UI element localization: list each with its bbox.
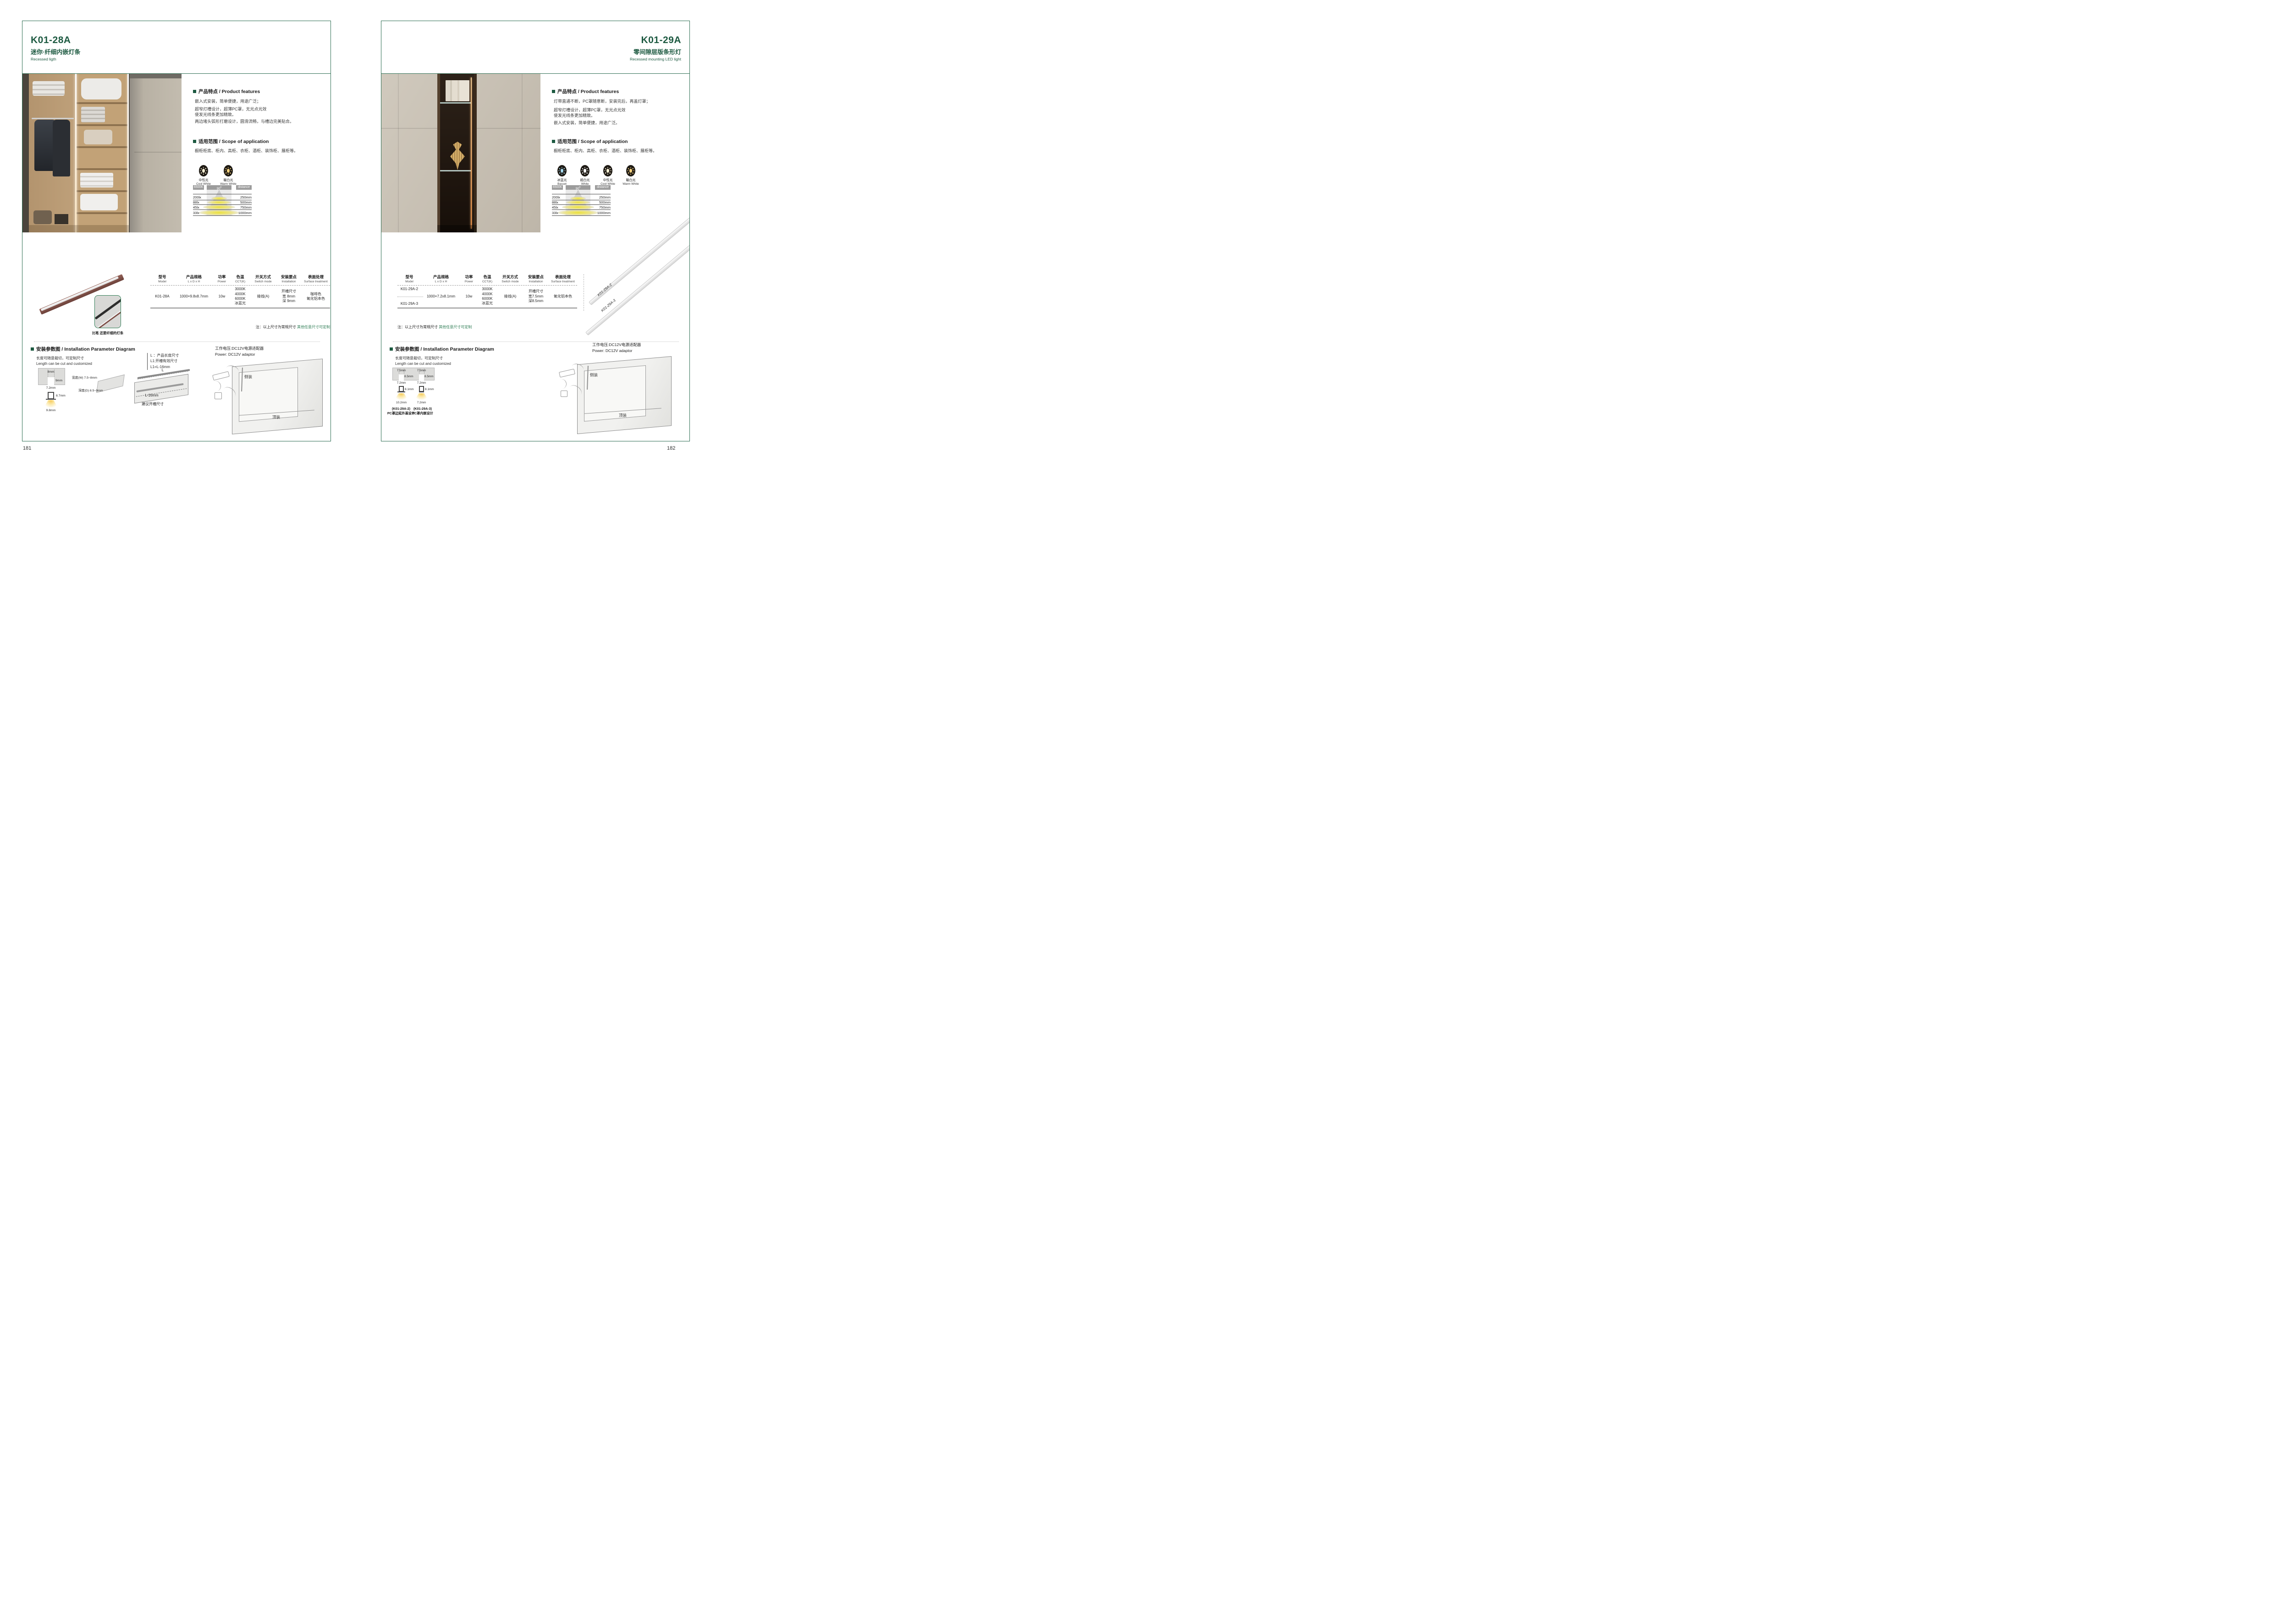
lux-value: 200lx (552, 195, 560, 199)
photo-panel-seam-v2 (522, 74, 523, 232)
cell-surface: 氧化铝本色 (549, 294, 577, 299)
distance-value: 750mm (599, 205, 611, 209)
distance-value: 500mm (240, 200, 252, 204)
page-number-left: 181 (23, 446, 31, 451)
dim-bottom2: 7.2mm (415, 401, 428, 404)
bullet-square-icon (390, 347, 393, 351)
table-header: 型号Model 产品规格L x D x H 功率Power 色温CCT(K) 开… (397, 274, 577, 286)
right-custom-note: 注：以上尺寸为常规尺寸 其他任意尺寸可定制 (397, 325, 472, 330)
cut-note: 长度可随意裁切，可定制尺寸Length can be cut and custo… (36, 356, 92, 366)
light-glow-1 (395, 393, 408, 400)
left-lifestyle-photo (22, 74, 182, 232)
dim-groove-depth: 深度(D) 8.5~9mm (78, 388, 103, 392)
side-mount-label: 侧装 (244, 374, 252, 380)
bullet-square-icon (193, 90, 196, 93)
light-pool-3 (562, 205, 594, 209)
photo-towel-stack (33, 81, 65, 96)
photo-books (446, 80, 469, 101)
sun-icon (224, 165, 233, 176)
profile-section-29A2 (399, 386, 404, 392)
right-header: K01-29A 零间隙层版条形灯 Recessed mounting LED l… (630, 35, 681, 61)
left-subtitle-cn: 迷你·纤细内嵌灯条 (31, 47, 80, 56)
distance-chip: distance (595, 185, 611, 190)
photo-towels-lower (80, 173, 113, 187)
cell-power: 10w (461, 294, 477, 299)
lux-value: 88lx (193, 200, 199, 204)
cell-switch: 接线(A) (497, 294, 523, 299)
dim-notch2-depth: 8.5mm (424, 375, 434, 378)
left-install-title: 安装参数图 / Installation Parameter Diagram (31, 346, 135, 352)
cell-spec: 1000×7.2x8.1mm (421, 294, 461, 299)
right-scope-title: 适用范围 / Scope of application (552, 138, 628, 145)
sun-icon (626, 165, 635, 176)
light-pool-2 (566, 200, 590, 204)
dim-notch1-width: 7.5mm (397, 369, 406, 372)
light-icon-ice-blue: 冰蓝光 Basset (552, 165, 572, 186)
light-glow-2 (415, 393, 428, 400)
photo-shelf-board (77, 102, 129, 104)
page-number-right: 182 (667, 446, 675, 451)
cabinet-diagram (577, 356, 672, 434)
cabinet-diagram (232, 358, 323, 434)
right-features-title: 产品特点 / Product features (552, 88, 619, 95)
groove-caption: 建议开槽尺寸 (139, 402, 166, 407)
cell-cct: 3000K4000K 6000K冰蓝光 (230, 287, 250, 306)
feature-line: 灯带直通不断，PC罩随意断，安装完后，再盖灯罩； (554, 98, 650, 104)
photo-door-edge (129, 74, 130, 232)
page-right: K01-29A 零间隙层版条形灯 Recessed mounting LED l… (381, 21, 690, 441)
dim-profile-height: 8.7mm (56, 394, 66, 397)
photo-shelf-board (77, 146, 129, 148)
feature-line: 嵌入式安装，简单便捷，用途广泛； (195, 98, 261, 104)
inset-caption: 比笔 还要纤细的灯条 (80, 330, 135, 336)
photo-shelf-board (77, 212, 129, 214)
left-photometric-chart: 6500K 900 distance 200lx 88lx 45lx 33lx … (193, 185, 252, 217)
sun-icon (603, 165, 612, 176)
light-icon-cool-white: 中性光 Cool White (598, 165, 618, 186)
photo-folded-clothes (81, 107, 105, 122)
photo-hanging-rod (32, 118, 74, 119)
wall-plug (215, 392, 222, 399)
sun-icon (199, 165, 208, 176)
strip-render-2 (585, 238, 690, 336)
left-inset-comparison (94, 295, 121, 328)
photo-wall-edge (22, 74, 29, 232)
photo-led-line (471, 77, 472, 229)
photo-shelf-board (77, 190, 129, 192)
left-features-title: 产品特点 / Product features (193, 88, 260, 95)
top-mount-label: 顶装 (619, 413, 627, 418)
scope-text: 橱柜柜底、柜内、高柜、衣柜、酒柜、装饰柜、展柜等。 (195, 148, 298, 154)
strip-label-1: K01-29A-2 (597, 283, 613, 297)
table-right-divider (584, 274, 584, 311)
table-row: K01-28A 1000×9.8x8.7mm 10w 3000K4000K 60… (150, 286, 330, 308)
dim-notch-width: 8mm (45, 370, 56, 374)
table-header: 型号Model 产品规格L x D x H 功率Power 色温CCT(K) 开… (150, 274, 330, 286)
profile-section (48, 392, 54, 400)
bullet-square-icon (193, 140, 196, 143)
lux-value: 200lx (193, 195, 201, 199)
left-model-title: K01-28A (31, 35, 80, 46)
notch-2 (419, 374, 424, 380)
left-spec-table: 型号Model 产品规格L x D x H 功率Power 色温CCT(K) 开… (150, 274, 330, 308)
left-header: K01-28A 迷你·纤细内嵌灯条 Recessed ligth (31, 35, 80, 61)
light-glow (44, 400, 58, 407)
scope-text: 橱柜柜底、柜内、高柜、衣柜、酒柜、装饰柜、展柜等。 (554, 148, 657, 154)
cell-install: 开槽尺寸宽7.5mm深8.5mm (523, 289, 549, 303)
right-install-title: 安装参数图 / Installation Parameter Diagram (390, 346, 494, 352)
dim-prof1-width: 7.2mm (397, 381, 406, 385)
cell-switch: 接线(A) (250, 294, 276, 299)
distance-value: 1000mm (597, 211, 611, 215)
power-adapter (212, 371, 230, 380)
photo-shelf-board (77, 124, 129, 126)
right-power-spec: 工作电压:DC12V电源适配器Power: DC12V adaptor (592, 342, 641, 354)
left-scope-title: 适用范围 / Scope of application (193, 138, 269, 145)
variant2-code: (K01-29A-3) (408, 407, 437, 411)
feature-line: 嵌入式安装，简单便捷，用途广泛。 (554, 120, 620, 126)
sun-icon (557, 165, 567, 176)
distance-value: 1000mm (238, 211, 252, 215)
light-icon-warm-white: 暖白光 Warm White (218, 165, 239, 186)
light-pool-2 (207, 200, 231, 204)
right-light-color-icons: 冰蓝光 Basset 超白光 White 中性光 Cool Wh (552, 165, 641, 186)
variant2-caption: PC罩内嵌设计 (408, 411, 437, 416)
lux-value: 33lx (193, 211, 199, 215)
photo-glass-shelf-2 (440, 170, 471, 171)
feature-line: 两边堵头弧形打磨设计，圆滑流畅，与槽边完美贴合。 (195, 118, 294, 124)
light-icon-warm-white: 暖白光 Warm White (621, 165, 641, 186)
photo-niche-frame-left (437, 74, 440, 232)
dim-bottom1: 10.2mm (395, 401, 408, 404)
dim-notch1-depth: 8.5mm (404, 375, 413, 378)
distance-value: 750mm (240, 205, 252, 209)
left-light-color-icons: 中性光 Cool White 暖白光 Warm White (193, 165, 239, 186)
distance-value: 250mm (599, 195, 611, 199)
bullet-square-icon (552, 90, 555, 93)
dim-prof2-width: 7.2mm (417, 381, 426, 385)
photo-door-rail (129, 74, 182, 78)
catalog-spread: K01-28A 迷你·纤细内嵌灯条 Recessed ligth (0, 0, 707, 462)
light-icon-white: 超白光 White (575, 165, 595, 186)
right-spec-table: 型号Model 产品规格L x D x H 功率Power 色温CCT(K) 开… (397, 274, 577, 308)
left-power-spec: 工作电压:DC12V电源适配器Power: DC12V adaptor (215, 346, 264, 358)
table-row: K01-29A-2 K01-29A-3 1000×7.2x8.1mm 10w 3… (397, 286, 577, 308)
photo-bedding (80, 194, 118, 210)
lux-value: 45lx (552, 205, 558, 209)
right-lifestyle-photo (381, 74, 540, 232)
length-legend: L ：产品长度尺寸L1:开槽有效尺寸L1=L-16mm (147, 353, 179, 370)
cct-chip: 6500K (193, 185, 204, 190)
feature-line: 使发光线条更加精致。 (554, 112, 595, 118)
cell-install: 开槽尺寸宽 8mm深 9mm (276, 289, 302, 303)
plug-wire (208, 380, 222, 393)
cell-power: 10w (214, 294, 230, 299)
dim-profile-width: 7.2mm (45, 386, 57, 390)
bullet-square-icon (552, 140, 555, 143)
dim-groove-width: 宽度(W) 7.5~8mm (72, 375, 96, 380)
top-mount-label: 顶装 (272, 414, 280, 420)
cross-section-notch (48, 377, 54, 385)
wall-plug (561, 391, 567, 397)
right-subtitle-en: Recessed mounting LED light (630, 57, 681, 61)
section-divider (34, 341, 320, 342)
beam-chip: 900 (207, 185, 231, 190)
feature-line: 使发光线条更加精致。 (195, 111, 236, 117)
light-pool-4 (558, 210, 598, 215)
left-subtitle-en: Recessed ligth (31, 57, 80, 61)
lux-value: 88lx (552, 200, 558, 204)
notch-1 (399, 374, 404, 380)
beam-chip: 900 (566, 185, 590, 190)
dim-notch2-width: 7.5mm (417, 369, 426, 372)
photo-bag-lower (33, 210, 52, 224)
right-model-title: K01-29A (630, 35, 681, 46)
photo-door-seam (134, 152, 182, 153)
model-dotted-divider (397, 297, 423, 297)
lux-value: 45lx (193, 205, 199, 209)
photo-sliding-door (129, 74, 182, 232)
left-custom-note: 注：以上尺寸为常规尺寸 其他任意尺寸可定制 (150, 325, 330, 330)
profile-section-29A3 (419, 386, 424, 392)
dim-L: L (159, 368, 166, 372)
photo-satchel (84, 130, 112, 144)
photo-floor-shadow (29, 225, 129, 232)
photo-pillows (81, 78, 121, 99)
photo-niche-shadow (437, 225, 477, 232)
right-photometric-chart: 6500K 900 distance 200lx 88lx 45lx 33lx … (552, 185, 611, 217)
bullet-square-icon (31, 347, 34, 351)
light-pool-3 (203, 205, 235, 209)
page-left: K01-28A 迷你·纤细内嵌灯条 Recessed ligth (22, 21, 331, 441)
photo-shelf-board (77, 168, 129, 170)
distance-value: 250mm (240, 195, 252, 199)
cell-model: K01-28A (150, 294, 174, 299)
dim-prof1-height: 8.1mm (405, 388, 414, 391)
plug-wire (555, 378, 567, 391)
cct-chip: 6500K (552, 185, 563, 190)
photo-glass-shelf-1 (440, 102, 471, 104)
dim-notch-depth: 9mm (55, 379, 65, 382)
photo-niche-frame-right (474, 74, 477, 232)
light-pool-4 (199, 210, 239, 215)
cut-note: 长度可随意裁切，可定制尺寸Length can be cut and custo… (395, 356, 451, 366)
distance-value: 500mm (599, 200, 611, 204)
cell-models: K01-29A-2 K01-29A-3 (397, 287, 421, 306)
photo-led-strip-line (75, 74, 77, 232)
lux-value: 33lx (552, 211, 558, 215)
light-icon-cool-white: 中性光 Cool White (193, 165, 214, 186)
cell-spec: 1000×9.8x8.7mm (174, 294, 214, 299)
photo-box (55, 214, 68, 224)
side-mount-label: 侧装 (590, 372, 598, 378)
distance-chip: distance (236, 185, 252, 190)
dim-L16: L-16mm (143, 393, 161, 397)
cell-cct: 3000K4000K 6000K冰蓝光 (477, 287, 497, 306)
sun-icon (580, 165, 590, 176)
photo-panel-seam-v (398, 74, 399, 232)
right-subtitle-cn: 零间隙层版条形灯 (630, 47, 681, 56)
photo-garment (53, 120, 70, 176)
cell-surface: 咖啡色氧化铝本色 (302, 292, 330, 302)
dim-prof2-height: 8.1mm (425, 388, 434, 391)
dim-bottom-width: 9.8mm (45, 409, 57, 412)
